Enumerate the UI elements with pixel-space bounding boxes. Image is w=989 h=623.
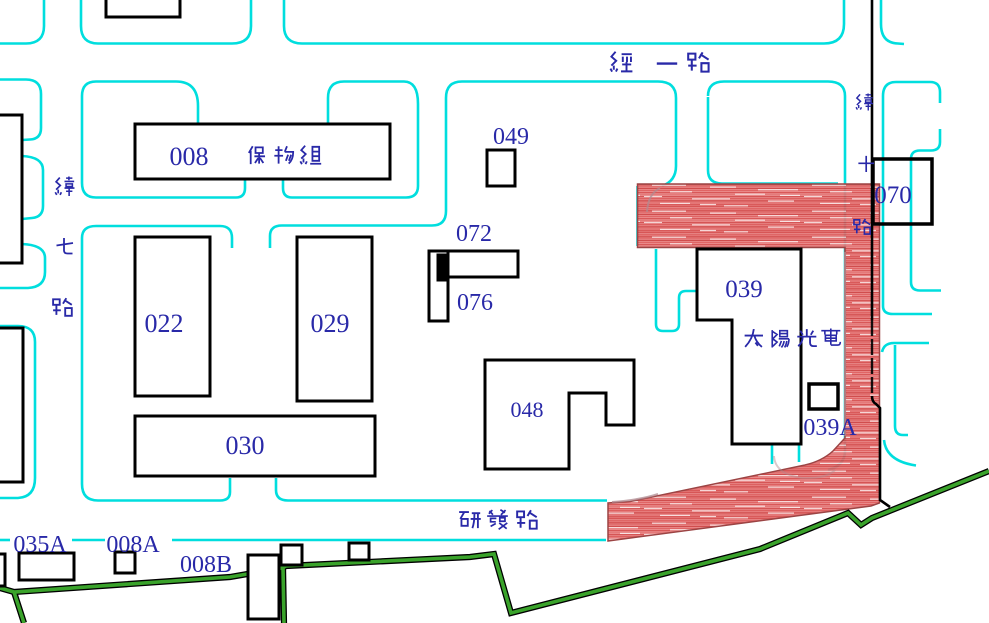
- svg-text:039A: 039A: [803, 415, 857, 441]
- svg-text:030: 030: [226, 431, 265, 460]
- svg-text:029: 029: [311, 309, 350, 338]
- svg-text:008B: 008B: [180, 552, 232, 578]
- svg-text:072: 072: [456, 221, 492, 247]
- svg-text:022: 022: [145, 309, 184, 338]
- svg-text:008A: 008A: [106, 532, 160, 558]
- svg-text:048: 048: [511, 397, 544, 422]
- svg-text:008: 008: [170, 142, 209, 171]
- svg-text:076: 076: [457, 290, 493, 316]
- svg-text:035A: 035A: [13, 532, 67, 558]
- svg-text:049: 049: [493, 124, 529, 150]
- svg-text:070: 070: [874, 182, 912, 209]
- svg-text:039: 039: [725, 276, 763, 303]
